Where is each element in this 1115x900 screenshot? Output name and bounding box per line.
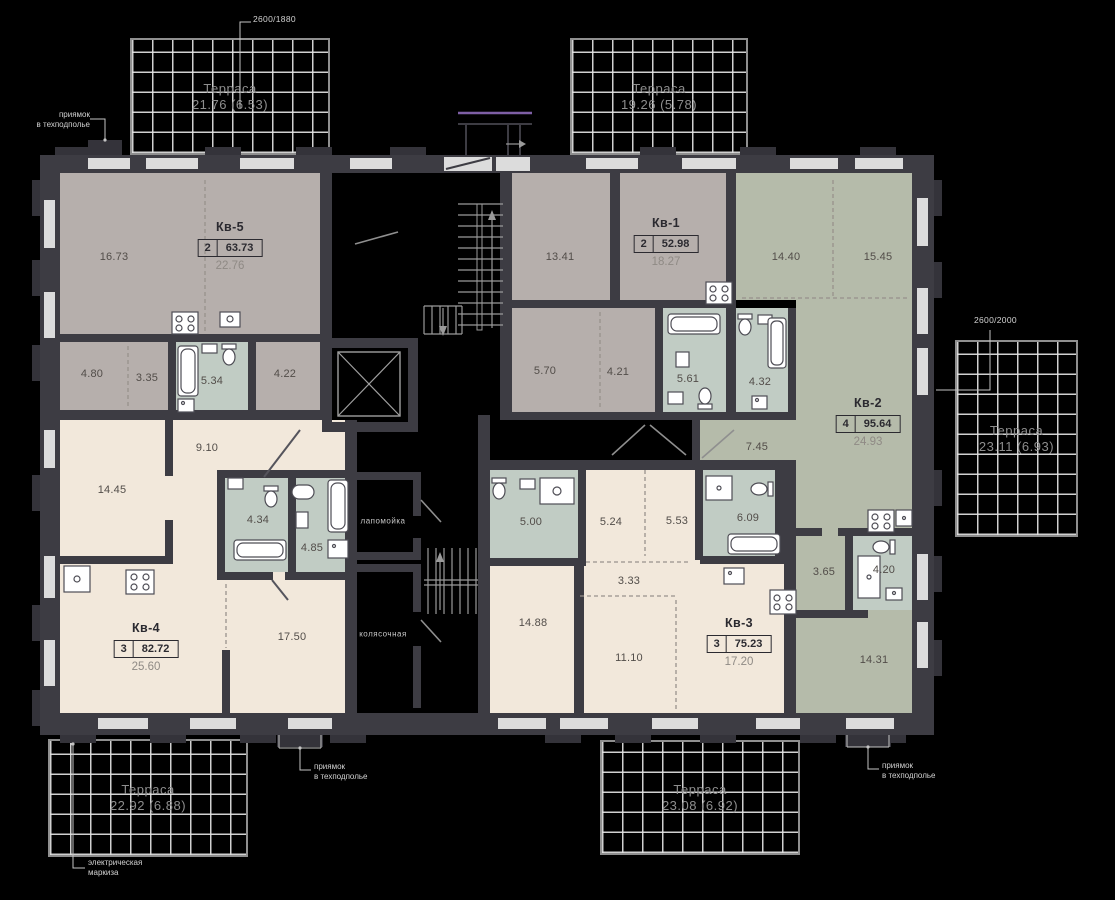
room-area-label: 4.32 [749,376,771,388]
apartment-area-box: 3 75.23 [707,635,772,653]
apartment-area-box: 3 82.72 [114,640,179,658]
room-area-label: 14.40 [772,251,801,263]
apartment-living-area: 24.93 [836,436,901,448]
room-area-label: 4.85 [301,542,323,554]
awning-annotation: электрическая маркиза [88,858,142,878]
room-area-label: 5.24 [600,516,622,528]
room-area-label: 5.61 [677,373,699,385]
apartment-label-kv3: Кв-3 3 75.23 17.20 [707,616,772,668]
apartment-total-area: 52.98 [654,236,698,252]
floor-plan-linework [0,0,1115,900]
room-area-label: 15.45 [864,251,893,263]
room-area-label: 5.00 [520,516,542,528]
apartment-total-area: 63.73 [218,240,262,256]
room-area-label: 17.50 [278,631,307,643]
pit-annotation-top-left: приямок в техподполье [34,110,90,130]
room-area-label: 4.21 [607,366,629,378]
room-area-label: 13.41 [546,251,575,263]
paw-wash-room-label: лапомойка [361,517,406,526]
room-area-label: 9.10 [196,442,218,454]
pit-annotation-bottom-right: приямок в техподполье [882,761,935,781]
room-area-label: 4.34 [247,514,269,526]
room-area-label: 5.53 [666,515,688,527]
room-area-label: 14.31 [860,654,889,666]
apartment-living-area: 17.20 [707,656,772,668]
pit-annotation-bottom-middle: приямок в техподполье [314,762,367,782]
apartment-label-kv1: Кв-1 2 52.98 18.27 [634,216,699,268]
apartment-area-box: 4 95.64 [836,415,901,433]
apartment-total-area: 95.64 [856,416,900,432]
room-area-label: 4.22 [274,368,296,380]
apartment-name: Кв-2 [836,396,901,410]
elevator [338,352,400,416]
room-area-label: 7.45 [746,441,768,453]
room-area-label: 16.73 [100,251,129,263]
floor-plan: Терраса 21.76 (6.53) Терраса 19.26 (5.78… [0,0,1115,900]
apartment-label-kv5: Кв-5 2 63.73 22.76 [198,220,263,272]
room-area-label: 4.80 [81,368,103,380]
dimension-label-right: 2600/2000 [974,315,1017,325]
apartment-label-kv4: Кв-4 3 82.72 25.60 [114,621,179,673]
apartment-rooms-count: 3 [115,641,134,657]
room-area-label: 3.33 [618,575,640,587]
room-area-label: 5.34 [201,375,223,387]
apartment-total-area: 75.23 [727,636,771,652]
room-area-label: 6.09 [737,512,759,524]
apartment-living-area: 18.27 [634,256,699,268]
apartment-rooms-count: 2 [635,236,654,252]
room-area-label: 5.70 [534,365,556,377]
room-area-label: 4.20 [873,564,895,576]
apartment-rooms-count: 2 [199,240,218,256]
apartment-area-box: 2 63.73 [198,239,263,257]
dimension-label-top: 2600/1880 [253,14,296,24]
room-area-label: 3.65 [813,566,835,578]
apartment-name: Кв-4 [114,621,179,635]
room-area-label: 3.35 [136,372,158,384]
apartment-rooms-count: 4 [837,416,856,432]
room-area-label: 14.45 [98,484,127,496]
room-area-label: 11.10 [615,652,643,664]
apartment-name: Кв-3 [707,616,772,630]
apartment-label-kv2: Кв-2 4 95.64 24.93 [836,396,901,448]
apartment-total-area: 82.72 [134,641,178,657]
apartment-name: Кв-5 [198,220,263,234]
apartment-rooms-count: 3 [708,636,727,652]
apartment-area-box: 2 52.98 [634,235,699,253]
building-entrance [444,113,532,171]
apartment-living-area: 25.60 [114,661,179,673]
apartment-living-area: 22.76 [198,260,263,272]
stroller-room-label: колясочная [359,630,407,639]
room-area-label: 14.88 [519,617,548,629]
apartment-name: Кв-1 [634,216,699,230]
